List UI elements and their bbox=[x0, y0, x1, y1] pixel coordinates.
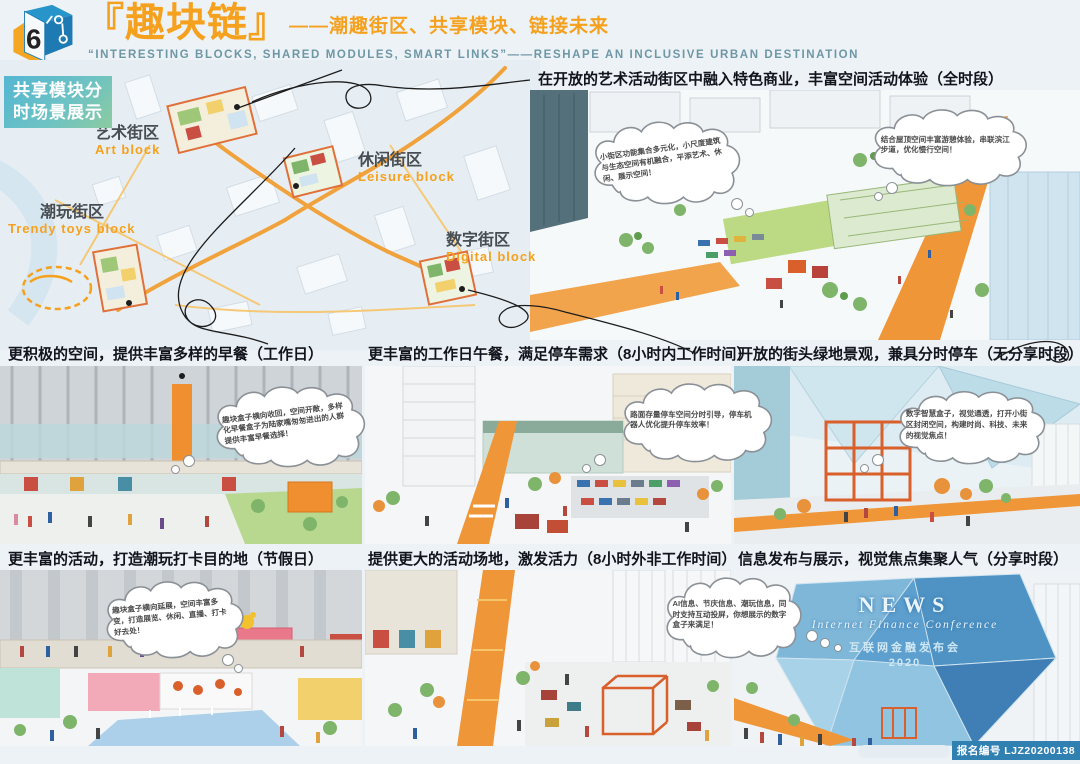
caption-bottom-left: 更丰富的活动，打造潮玩打卡目的地（节假日） bbox=[8, 548, 323, 569]
caption-bottom-right: 信息发布与展示，视觉焦点集聚人气（分享时段） bbox=[738, 548, 1068, 569]
speech-bubble-bottom-right: AI信息、节庆信息、潮玩信息，同时支持互动投屏，你想展示的数字盒子来满足！ bbox=[656, 574, 806, 658]
badge-line2: 时场景展示 bbox=[13, 102, 103, 124]
speech-bubble-hero-1: 小街区功能集合多元化，小尺度建筑与生态空间有机融合，平添艺术、休闲、展示空间！ bbox=[583, 118, 745, 204]
title-cn: 『趣块链』 bbox=[84, 2, 289, 44]
news-cn: 互联网金融发布会 bbox=[798, 639, 1012, 655]
caption-mid-right: 开放的街头绿地景观，兼具分时停车（无分享时段） bbox=[738, 343, 1080, 364]
speech-bubble-hero-2: 结合屋顶空间丰富游憩体验，串联滨江步道，优化慢行空间！ bbox=[862, 106, 1032, 186]
poster: 6 『趣块链』 ——潮趣街区、共享模块、链接未来 “INTERESTING BL… bbox=[0, 0, 1080, 764]
footer-strip bbox=[858, 745, 950, 758]
map-label-digital-block: 数字街区 Digital block bbox=[446, 232, 536, 265]
caption-mid-center: 更丰富的工作日午餐，满足停车需求（8小时内工作时间） bbox=[368, 343, 751, 364]
speech-bubble-mid-center: 路面存量停车空间分时引导，停车机器人优化提升停车效率！ bbox=[612, 380, 777, 462]
news-screen-text: NEWS Internet Finance Conference 互联网金融发布… bbox=[798, 592, 1012, 669]
speech-bubble-bottom-left: 趣块盒子横向延展，空间丰富多变，打造展览、休闲、直播、打卡好去处！ bbox=[96, 578, 248, 658]
map-label-art-block: 艺术街区 Art block bbox=[95, 125, 160, 158]
news-year: 2020 bbox=[798, 657, 1012, 669]
title-suffix: ——潮趣街区、共享模块、链接未来 bbox=[289, 11, 609, 44]
page-title: 『趣块链』 ——潮趣街区、共享模块、链接未来 bbox=[84, 2, 609, 44]
registration-number: 报名编号 LJZ20200138 bbox=[952, 741, 1080, 760]
map-label-leisure-block: 休闲街区 Leisure block bbox=[358, 152, 455, 185]
news-title: NEWS bbox=[798, 592, 1012, 618]
map-label-trendy-block: 潮玩街区 Trendy toys block bbox=[40, 204, 136, 237]
section-badge: 共享模块分 时场景展示 bbox=[4, 76, 112, 128]
speech-bubble-mid-left: 趣块盒子横向收回，空间开敞，多样化早餐盒子为陆家嘴匆匆进出的人群提供丰富早餐选择… bbox=[205, 383, 370, 467]
caption-mid-left: 更积极的空间，提供丰富多样的早餐（工作日） bbox=[8, 343, 323, 364]
speech-bubble-mid-right: 数字智慧盒子，视觉通透，打开小街区封闭空间，构建时尚、科技、未来的视觉焦点！ bbox=[888, 388, 1050, 464]
badge-line1: 共享模块分 bbox=[13, 80, 103, 102]
caption-bottom-center: 提供更大的活动场地，激发活力（8小时外非工作时间） bbox=[368, 548, 736, 569]
logo-number: 6 bbox=[26, 23, 41, 54]
caption-hero: 在开放的艺术活动街区中融入特色商业，丰富空间活动体验（全时段） bbox=[538, 68, 1003, 89]
news-subtitle: Internet Finance Conference bbox=[798, 619, 1012, 631]
